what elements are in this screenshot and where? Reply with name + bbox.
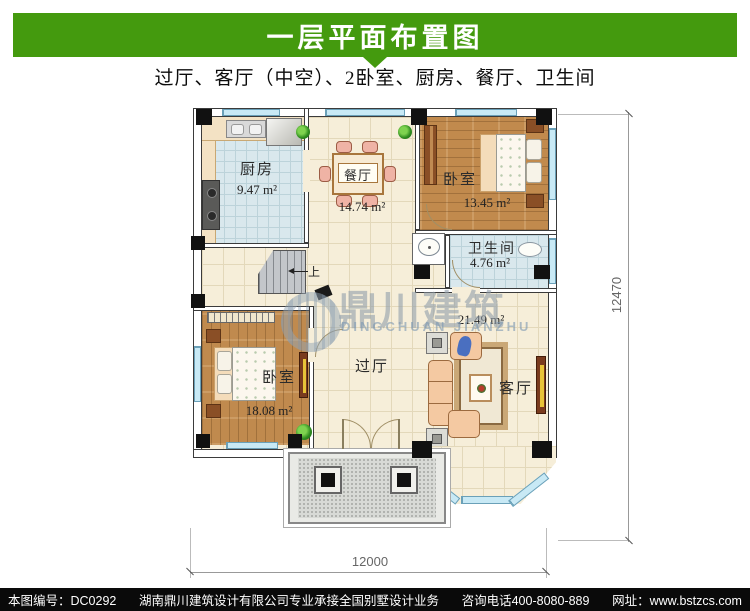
bed-pillow (217, 374, 232, 394)
bedroom-bottom-left-window (194, 346, 201, 402)
dining-chair (319, 166, 331, 182)
page-title: 一层平面布置图 (13, 13, 737, 57)
bedroom-bottom-area: 18.08 m² (234, 403, 304, 419)
column (196, 434, 210, 448)
dining-chair (384, 166, 396, 182)
dining-window (325, 109, 405, 116)
page: { "header": { "title": "一层平面布置图", "bg_co… (0, 0, 750, 611)
tv-cabinet (536, 356, 546, 414)
column (532, 441, 552, 458)
column (534, 265, 550, 279)
bedroom-top-label: 卧室 (428, 168, 492, 189)
column (411, 109, 427, 125)
kitchen-door-gap (303, 150, 310, 192)
bay-window-center (461, 496, 513, 504)
dimension-bottom-value: 12000 (330, 554, 410, 570)
dimension-right-value: 12470 (609, 265, 625, 325)
plant-icon (398, 125, 412, 139)
column (191, 294, 205, 308)
stairs-arrow-head (288, 268, 294, 274)
closet (207, 312, 275, 323)
basin-icon (418, 238, 440, 256)
porch-column (314, 466, 342, 494)
bath-door-gap (452, 287, 480, 294)
bedroom-top-area: 13.45 m² (452, 195, 522, 211)
column (196, 109, 212, 125)
footer-phone: 咨询电话400-8080-889 (462, 590, 590, 609)
armchair (448, 410, 480, 438)
bed-pillow (526, 139, 542, 160)
bedbottom-door-gap (308, 328, 315, 362)
wall-kitchen-bottom (193, 243, 309, 248)
dining-label: 餐厅 (338, 165, 378, 184)
kitchen-label: 厨房 (212, 158, 302, 179)
rug-medallion (469, 374, 492, 402)
side-table (426, 332, 448, 354)
entry-door-leaf (398, 419, 400, 449)
dining-chair (336, 141, 352, 153)
bathroom-window (549, 238, 556, 284)
column (412, 441, 432, 458)
dimension-right-line (628, 112, 629, 542)
footer-drawing-id: 本图编号：DC0292 (8, 590, 116, 609)
wall-bedbottom-top (193, 306, 314, 311)
wall-bath-bottom (415, 288, 557, 293)
nightstand (206, 329, 221, 343)
bed (496, 134, 526, 192)
nightstand (206, 404, 221, 418)
bedroom-top-window (455, 109, 517, 116)
bedroom-top-right-window (549, 128, 556, 200)
bedroom-bottom-label: 卧室 (250, 366, 308, 387)
plant-icon (296, 125, 310, 139)
sink-icon (226, 120, 266, 138)
wall-bath-left (445, 235, 450, 288)
living-label: 客厅 (492, 377, 540, 398)
column (191, 236, 205, 250)
dining-area: 14.74 m² (326, 199, 398, 215)
header-bar: 一层平面布置图 (13, 13, 737, 57)
column (414, 265, 430, 279)
wall-bedroomtop-left (415, 108, 420, 230)
dimension-bottom-line (190, 572, 547, 573)
footer-website: 网址：www.bstzcs.com (612, 590, 742, 609)
subtitle: 过厅、客厅（中空）、2卧室、厨房、餐厅、卫生间 (0, 63, 750, 90)
bedroom-bottom-window (226, 442, 278, 449)
bed-pillow (217, 351, 232, 371)
entry-door-leaf (342, 419, 344, 449)
footer-bar: 本图编号：DC0292 湖南鼎川建筑设计有限公司专业承接全国别墅设计业务 咨询电… (0, 588, 750, 611)
kitchen-window (222, 109, 280, 116)
living-area: 21.49 m² (448, 312, 514, 328)
footer-company: 湖南鼎川建筑设计有限公司专业承接全国别墅设计业务 (139, 590, 439, 609)
floor-plan: 厨房 9.47 m² 餐厅 14.74 m² 卧室 13.45 m² 卫生间 4… (0, 100, 750, 585)
dim-ext-line (558, 114, 628, 115)
dining-chair (362, 141, 378, 153)
nightstand (526, 194, 544, 208)
column (536, 109, 552, 125)
bed-pillow (526, 162, 542, 183)
dim-ext-line (558, 540, 628, 541)
column (288, 434, 302, 448)
hall-label: 过厅 (346, 355, 398, 376)
kitchen-area: 9.47 m² (212, 182, 302, 198)
wall-left (193, 108, 202, 458)
stairs-up-label: 上 (306, 263, 322, 280)
bathroom-area: 4.76 m² (456, 255, 524, 271)
porch-column (390, 466, 418, 494)
